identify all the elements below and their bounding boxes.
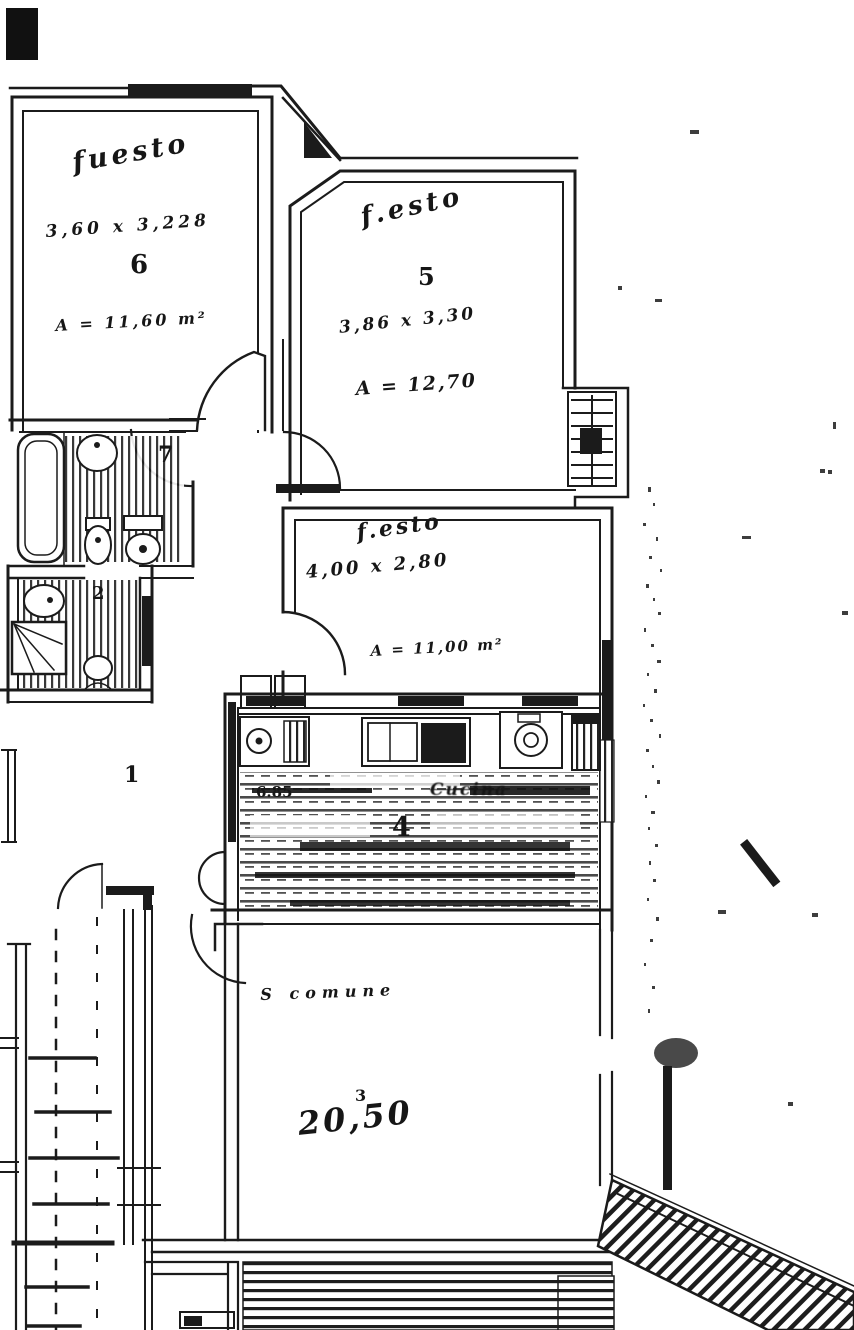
scan-speck bbox=[645, 795, 647, 798]
scan-speck bbox=[643, 704, 645, 707]
door-leaf-arc bbox=[284, 432, 340, 488]
scan-speck bbox=[647, 898, 649, 901]
living-room-walls bbox=[143, 922, 628, 1252]
scan-speck bbox=[646, 584, 649, 588]
scan-speck bbox=[653, 503, 655, 506]
toilet-icon bbox=[124, 516, 162, 564]
scan-speck bbox=[742, 536, 751, 539]
door-leaf-arc bbox=[197, 352, 265, 430]
balcony-railing bbox=[0, 906, 160, 1330]
scan-speck bbox=[618, 286, 622, 290]
scan-speck bbox=[659, 734, 661, 738]
scan-speck bbox=[653, 879, 656, 882]
scan-speck bbox=[652, 986, 655, 989]
bathtub-icon bbox=[18, 434, 64, 562]
scan-speck bbox=[656, 537, 658, 541]
scan-speck bbox=[648, 1009, 650, 1013]
scan-speck bbox=[657, 780, 660, 784]
kitchen-fixtures bbox=[240, 676, 600, 770]
ink-stroke-diagonal bbox=[740, 839, 780, 887]
ink-blob bbox=[654, 1038, 698, 1068]
scan-speck bbox=[649, 556, 652, 559]
scan-speck bbox=[718, 910, 726, 914]
kitchen-right-unit-icon bbox=[572, 714, 600, 770]
ink-marks bbox=[654, 839, 780, 1190]
scan-speck bbox=[654, 689, 657, 693]
bathroom1-number: 7 bbox=[158, 442, 173, 468]
radiator-icon bbox=[568, 392, 616, 486]
scan-speck bbox=[646, 749, 649, 752]
scan-speck bbox=[649, 861, 651, 865]
scan-speck bbox=[652, 765, 654, 768]
door-arc bbox=[283, 612, 345, 674]
hatched-strip bbox=[558, 1276, 614, 1330]
scan-speck bbox=[658, 612, 661, 615]
sink-icon bbox=[24, 585, 64, 617]
scan-speck bbox=[655, 844, 658, 847]
kitchen-sink-icon bbox=[240, 717, 309, 766]
scan-speck bbox=[643, 523, 646, 526]
washing-machine-icon bbox=[500, 712, 562, 768]
stove-icon bbox=[362, 718, 470, 766]
scan-speck bbox=[690, 130, 699, 134]
scan-speck bbox=[656, 917, 659, 921]
bidet-icon bbox=[85, 518, 111, 564]
scan-speck bbox=[651, 811, 655, 814]
scan-speck bbox=[828, 470, 832, 474]
kitchen-width-label: 6.85 bbox=[256, 783, 293, 801]
hallway-number: 1 bbox=[124, 762, 139, 788]
scan-speck bbox=[648, 487, 651, 492]
bathroom2 bbox=[0, 566, 152, 702]
bedroom2-number: 5 bbox=[418, 262, 435, 291]
scan-speck bbox=[655, 299, 662, 302]
sink-icon bbox=[77, 435, 117, 471]
door-arc bbox=[58, 864, 102, 908]
floorplan-scan: fuesto 3,60 x 3,228 6 A = 11,60 m² f.est… bbox=[0, 0, 854, 1330]
kitchen-label: Cucina bbox=[430, 780, 508, 800]
scan-speck bbox=[650, 719, 653, 722]
wall-hatch-strip bbox=[600, 740, 614, 822]
scan-speck bbox=[820, 469, 825, 473]
ink-stroke bbox=[663, 1066, 672, 1190]
scan-speck bbox=[653, 598, 655, 601]
shower-icon bbox=[12, 622, 66, 674]
scan-speck bbox=[650, 939, 653, 942]
scan-speck bbox=[812, 913, 818, 917]
kitchen-floor-smudge bbox=[240, 772, 598, 908]
scan-speck bbox=[657, 660, 661, 663]
scan-speck bbox=[651, 644, 654, 647]
kitchen-number: 4 bbox=[392, 812, 411, 843]
door-arc bbox=[199, 852, 225, 904]
hatched-band bbox=[243, 1262, 612, 1330]
scan-speck bbox=[644, 963, 646, 966]
door-triangle-mark bbox=[304, 122, 332, 158]
scan-speck bbox=[648, 827, 650, 830]
bedroom1-number: 6 bbox=[130, 250, 148, 280]
bedroom2-walls bbox=[283, 98, 628, 508]
scan-speck bbox=[647, 673, 649, 676]
scan-speck bbox=[788, 1102, 793, 1106]
scan-speck bbox=[644, 628, 646, 632]
scan-speck bbox=[842, 611, 848, 615]
scan-speck bbox=[833, 422, 836, 429]
bathroom2-number: 2 bbox=[92, 583, 105, 604]
scan-artifact-block bbox=[6, 8, 38, 60]
scan-speck bbox=[660, 569, 662, 572]
